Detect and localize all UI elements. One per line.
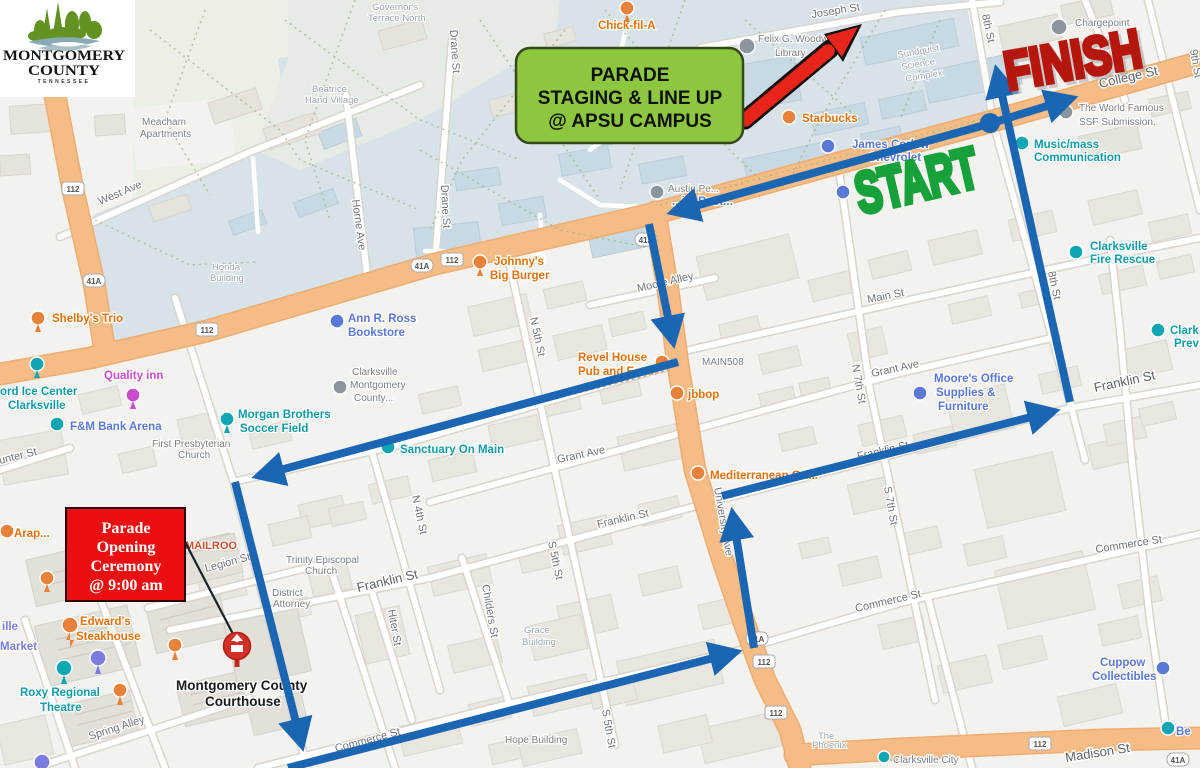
svg-text:Steakhouse: Steakhouse [76,631,141,643]
svg-text:@ 9:00 am: @ 9:00 am [89,577,163,594]
svg-text:Sanctuary On Main: Sanctuary On Main [400,444,504,456]
svg-text:Courthouse: Courthouse [205,694,281,709]
svg-text:Church: Church [178,450,210,461]
svg-text:Quality inn: Quality inn [104,370,163,382]
svg-text:Beatrice: Beatrice [312,84,347,95]
svg-text:@ APSU CAMPUS: @ APSU CAMPUS [548,111,712,132]
svg-text:County...: County... [354,393,393,404]
svg-text:F&M Bank Arena: F&M Bank Arena [70,421,162,433]
svg-text:Morgan Brothers: Morgan Brothers [238,409,331,421]
svg-text:Theatre: Theatre [40,702,82,714]
svg-text:Roxy Regional: Roxy Regional [20,687,100,699]
svg-text:Drane St: Drane St [438,185,452,229]
svg-text:Grace: Grace [524,625,550,636]
svg-text:Edward's: Edward's [80,616,131,628]
svg-text:PARADE: PARADE [591,65,670,86]
svg-text:Bookstore: Bookstore [348,327,405,339]
svg-text:Phoenix: Phoenix [812,740,847,751]
svg-text:41A: 41A [415,262,430,271]
svg-text:MAILROO: MAILROO [185,540,237,552]
svg-text:112: 112 [446,256,459,265]
svg-text:Hand Village: Hand Village [305,95,359,106]
svg-text:TENNESSEE: TENNESSEE [38,79,91,85]
svg-text:Clarksville City: Clarksville City [893,755,959,766]
svg-text:SSF Submission.: SSF Submission. [1079,117,1156,128]
svg-text:The World Famous: The World Famous [1079,103,1164,114]
svg-text:Montgomery: Montgomery [350,380,406,391]
svg-text:Clarksville: Clarksville [8,400,66,412]
svg-text:Clarksville: Clarksville [352,367,398,378]
svg-text:Governor's: Governor's [372,2,418,13]
svg-text:Church: Church [305,566,337,577]
svg-text:Arap...: Arap... [14,528,50,540]
svg-text:Library: Library [775,48,806,59]
svg-text:Opening: Opening [97,539,156,556]
svg-text:Building: Building [522,637,556,648]
svg-text:Cuppow: Cuppow [1100,657,1145,669]
svg-text:Clarksville: Clarksville [1090,241,1148,253]
svg-text:ord Ice Center: ord Ice Center [0,386,78,398]
svg-text:Hope Building: Hope Building [505,735,567,746]
svg-text:Ceremony: Ceremony [91,558,162,575]
svg-text:MONTGOMERY: MONTGOMERY [3,48,125,64]
svg-text:Music/mass: Music/mass [1034,139,1099,151]
svg-text:Collectibles: Collectibles [1092,671,1157,683]
svg-text:First Presbyterian: First Presbyterian [152,439,230,450]
svg-text:Ann R. Ross: Ann R. Ross [348,313,416,325]
svg-text:Market: Market [0,641,37,653]
svg-text:Supplies &: Supplies & [936,387,995,399]
svg-text:ille: ille [2,621,18,633]
svg-text:Starbucks: Starbucks [802,113,858,125]
svg-text:Terrace North: Terrace North [368,13,426,24]
svg-text:Furniture: Furniture [938,401,988,413]
svg-text:Apartments: Apartments [140,129,191,140]
svg-text:District: District [272,588,303,599]
svg-text:Shelby's Trio: Shelby's Trio [52,313,123,325]
svg-text:COUNTY: COUNTY [28,63,100,79]
svg-text:jbbop: jbbop [687,389,719,401]
svg-text:Meacham: Meacham [142,117,186,128]
svg-text:Building: Building [210,273,244,284]
svg-text:112: 112 [67,185,80,194]
svg-text:Austin Pe...: Austin Pe... [668,184,719,195]
svg-text:Johnny's: Johnny's [494,256,544,268]
svg-text:Soccer Field: Soccer Field [240,423,308,435]
svg-text:Communication: Communication [1034,152,1121,164]
svg-text:Revel House: Revel House [578,352,647,364]
svg-text:41A: 41A [87,277,102,286]
svg-text:Prev: Prev [1174,338,1200,350]
svg-text:112: 112 [758,658,771,667]
svg-text:41A: 41A [1171,756,1186,765]
svg-text:Attorney: Attorney [273,599,310,610]
svg-text:STAGING & LINE UP: STAGING & LINE UP [538,88,723,109]
svg-text:112: 112 [1034,740,1047,749]
svg-text:Be: Be [1176,726,1191,738]
svg-text:Fire Rescue: Fire Rescue [1090,254,1155,266]
svg-text:Trinity Episcopal: Trinity Episcopal [286,555,359,566]
svg-text:112: 112 [770,709,783,718]
svg-text:Clark: Clark [1170,325,1199,337]
svg-text:Big Burger: Big Burger [490,270,550,282]
svg-text:112: 112 [201,326,214,335]
svg-text:Moore's Office: Moore's Office [934,373,1013,385]
svg-text:MAIN508: MAIN508 [702,357,744,368]
svg-text:Parade: Parade [102,520,151,537]
svg-text:Honda: Honda [212,262,241,273]
